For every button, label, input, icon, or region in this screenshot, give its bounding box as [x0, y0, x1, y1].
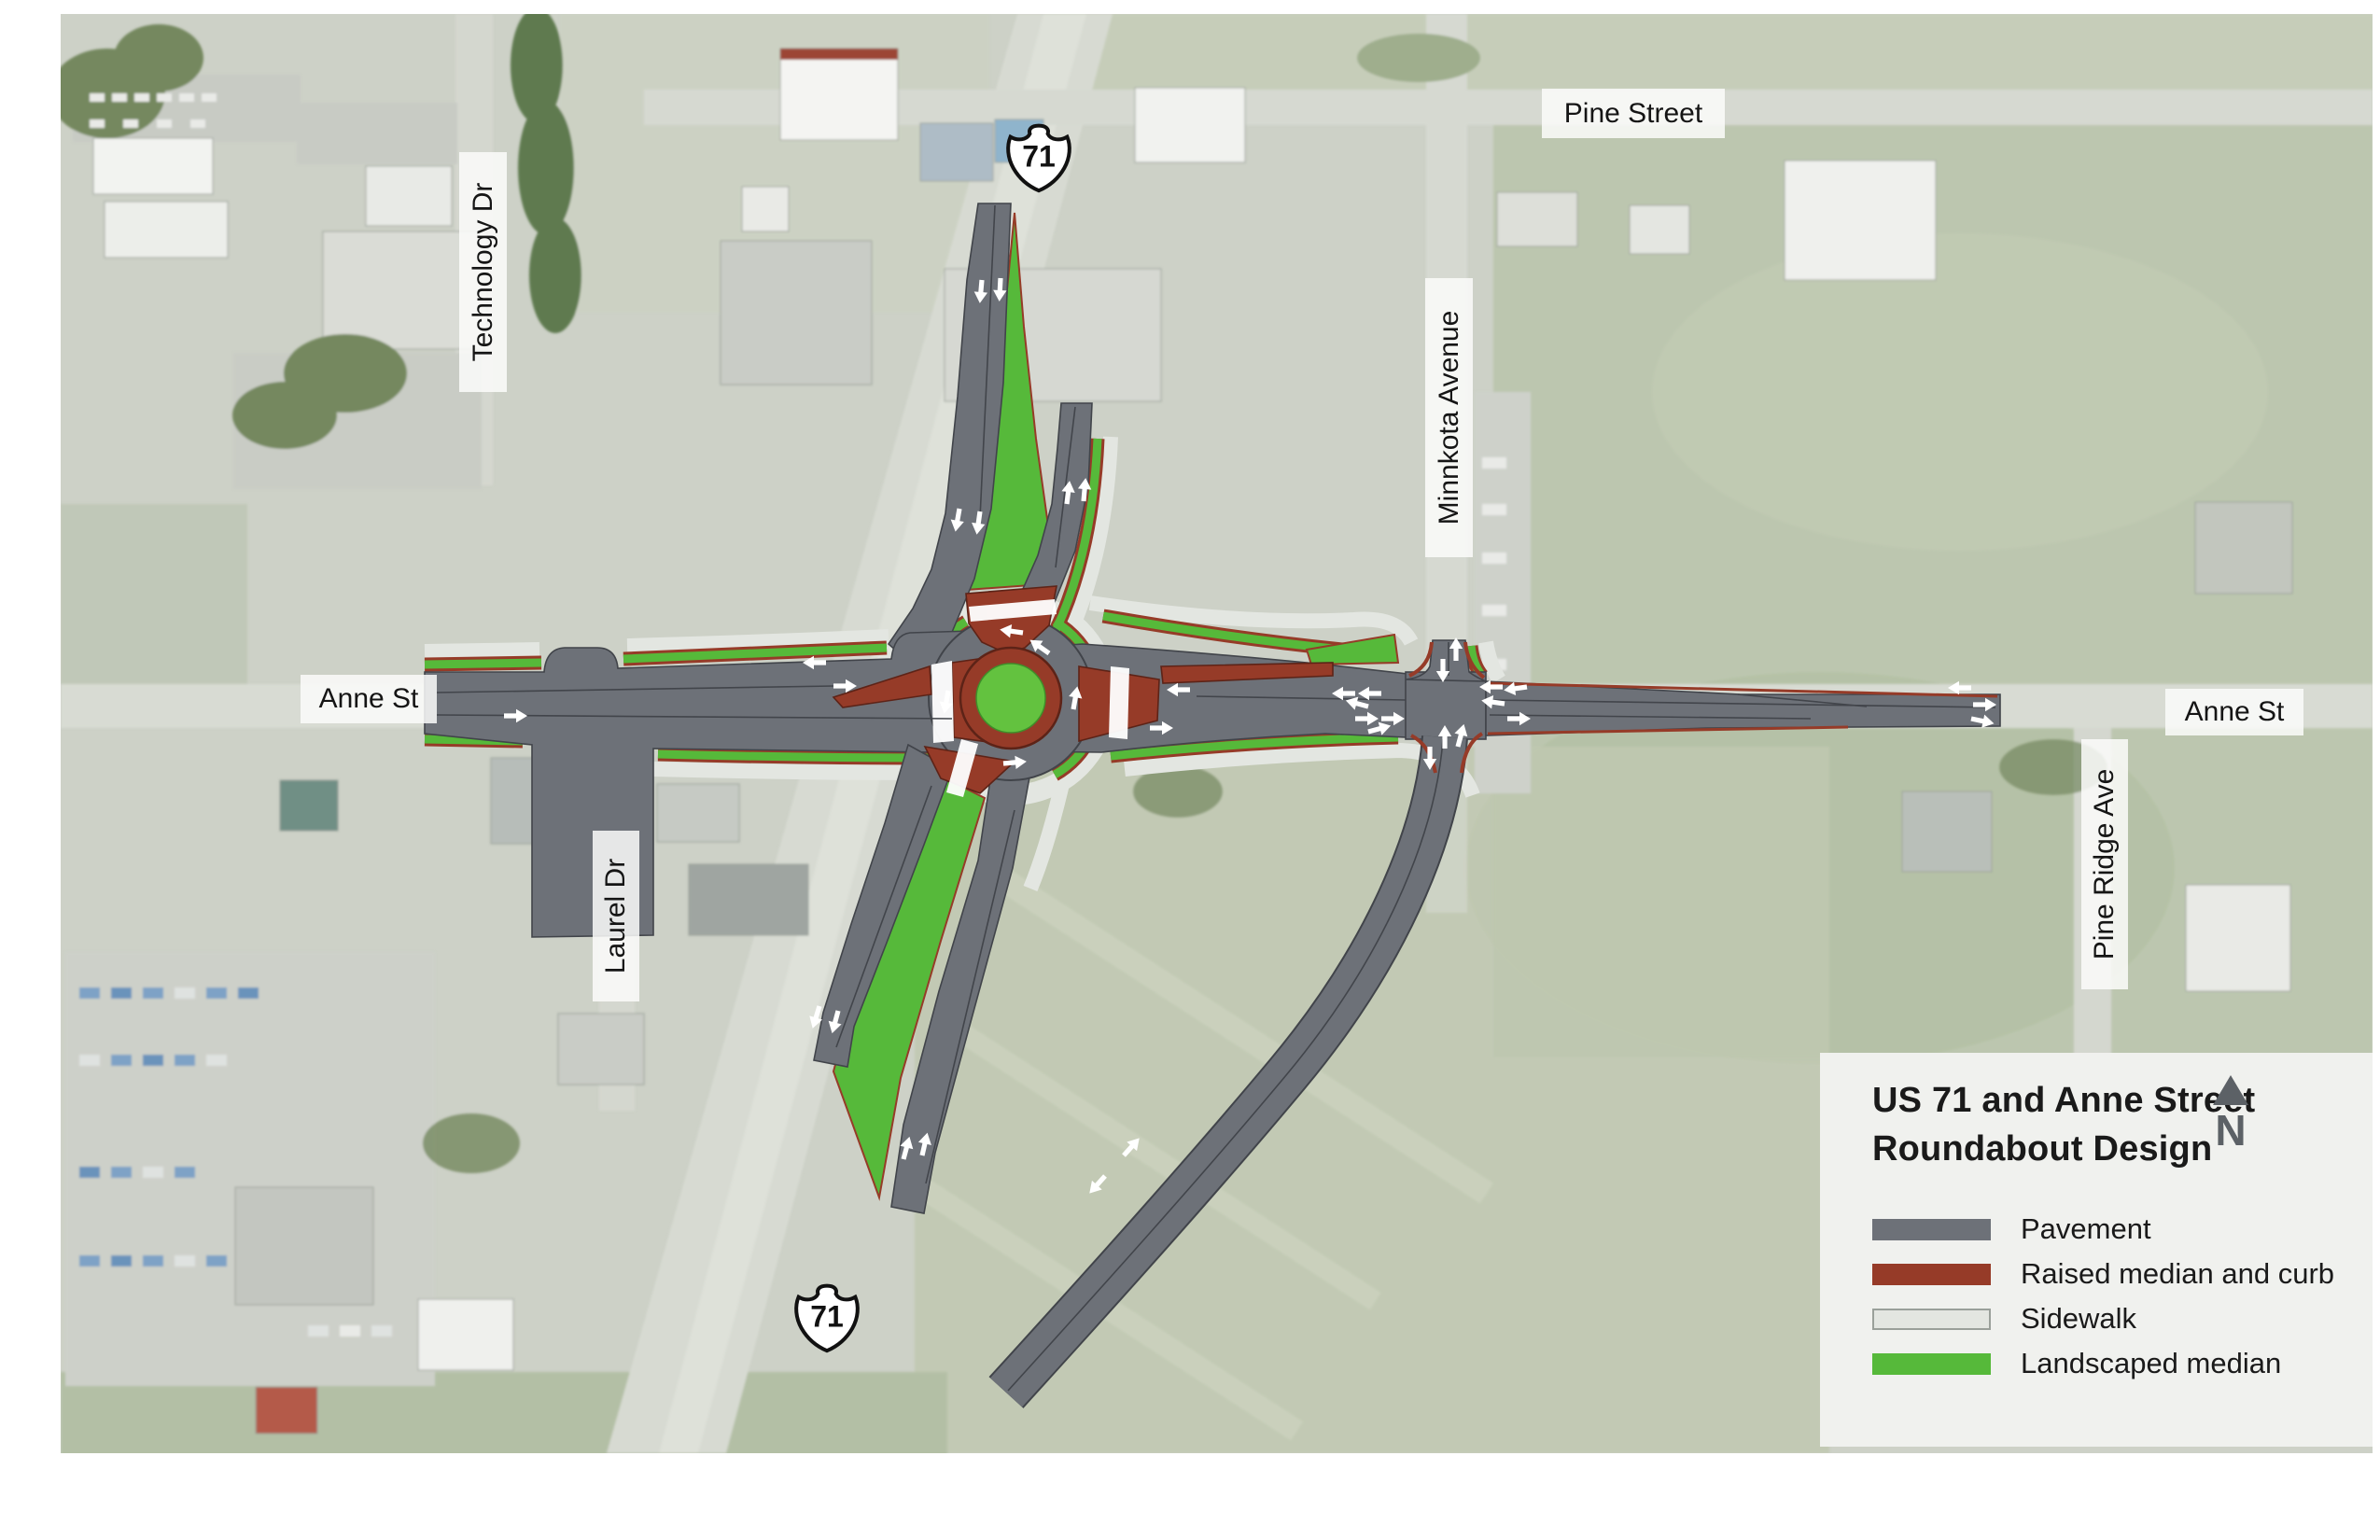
north-label: N: [2193, 1109, 2268, 1152]
legend-swatch-pavement: [1872, 1219, 1991, 1240]
svg-text:71: 71: [810, 1300, 844, 1334]
north-arrow-icon: [2213, 1075, 2248, 1105]
svg-text:71: 71: [1022, 140, 1056, 174]
street-label-pine-street: Pine Street: [1542, 89, 1725, 138]
legend-label-landscaped-median: Landscaped median: [2021, 1347, 2281, 1380]
legend-item-pavement: Pavement: [1872, 1212, 2151, 1246]
panel-title-line2: Roundabout Design: [1872, 1129, 2212, 1169]
legend-panel: US 71 and Anne Street Roundabout Design …: [1820, 1053, 2373, 1447]
north-arrow: N: [2193, 1075, 2268, 1152]
street-label-minnkota-avenue: Minnkota Avenue: [1425, 278, 1473, 557]
legend-label-raised-median: Raised median and curb: [2021, 1257, 2334, 1291]
legend-item-raised-median: Raised median and curb: [1872, 1257, 2334, 1291]
street-label-laurel-dr: Laurel Dr: [593, 831, 639, 1001]
legend-label-pavement: Pavement: [2021, 1212, 2151, 1246]
legend-swatch-sidewalk: [1872, 1309, 1991, 1330]
us-71-shield-south-icon: 71: [790, 1280, 864, 1356]
street-label-anne-st-east: Anne St: [2165, 689, 2303, 735]
street-label-technology-dr: Technology Dr: [459, 152, 507, 392]
central-island: [960, 648, 1061, 749]
legend-swatch-landscaped-median: [1872, 1353, 1991, 1375]
roundabout-design-figure: Pine Street Technology Dr Minnkota Avenu…: [0, 0, 2380, 1540]
street-label-anne-st-west: Anne St: [301, 675, 437, 723]
legend-item-sidewalk: Sidewalk: [1872, 1302, 2136, 1336]
legend-item-landscaped-median: Landscaped median: [1872, 1347, 2281, 1380]
street-label-pine-ridge-ave: Pine Ridge Ave: [2081, 739, 2128, 989]
legend-swatch-raised-median: [1872, 1264, 1991, 1285]
us-71-shield-north-icon: 71: [1001, 119, 1076, 196]
legend-label-sidewalk: Sidewalk: [2021, 1302, 2136, 1336]
